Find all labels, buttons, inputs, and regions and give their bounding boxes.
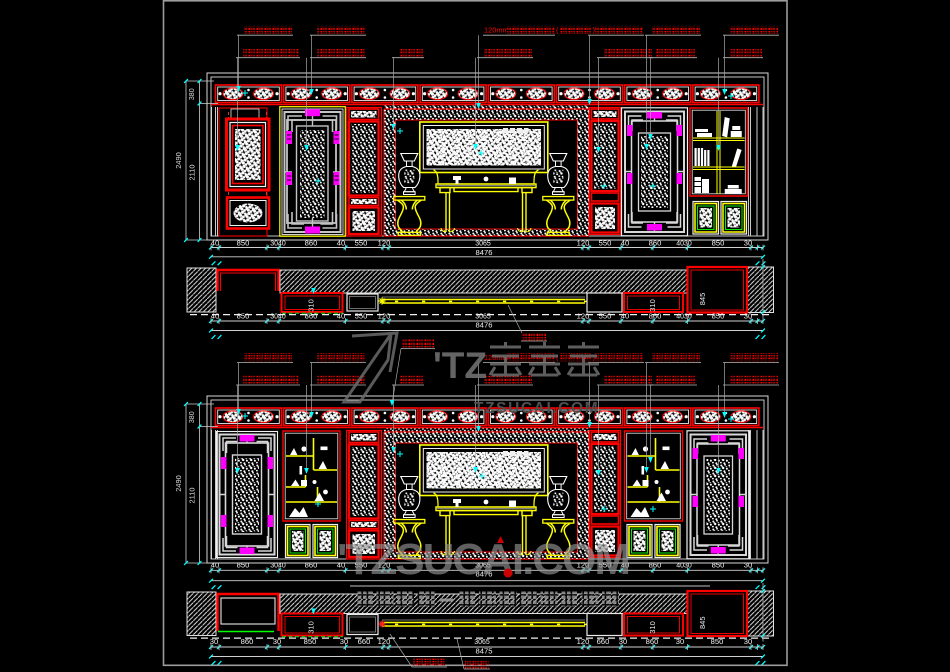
- svg-text:850: 850: [304, 637, 317, 646]
- svg-text:2490: 2490: [174, 152, 183, 168]
- svg-text:860: 860: [649, 312, 662, 321]
- svg-text:310: 310: [648, 299, 657, 312]
- svg-text:850: 850: [237, 239, 250, 248]
- svg-text:860: 860: [241, 637, 254, 646]
- svg-text:380: 380: [189, 411, 196, 423]
- svg-text:850: 850: [711, 637, 724, 646]
- svg-text:): ): [593, 26, 595, 35]
- svg-text:8475: 8475: [476, 646, 493, 655]
- svg-text:3040: 3040: [270, 314, 286, 321]
- svg-text:310: 310: [307, 299, 316, 312]
- svg-text:8476: 8476: [476, 320, 493, 329]
- svg-text:40: 40: [211, 561, 219, 570]
- svg-text:'TZ: 'TZ: [433, 345, 487, 386]
- svg-text:'TZSUCAI.COM: 'TZSUCAI.COM: [337, 535, 629, 584]
- svg-text:550: 550: [355, 239, 368, 248]
- svg-text:3065: 3065: [475, 241, 491, 248]
- svg-text:860: 860: [646, 637, 659, 646]
- svg-text:30: 30: [619, 637, 627, 646]
- svg-text:2490: 2490: [174, 475, 183, 491]
- svg-text:660: 660: [358, 637, 371, 646]
- svg-text:40: 40: [337, 239, 345, 248]
- svg-text:845: 845: [698, 293, 707, 306]
- svg-text:120mm: 120mm: [484, 26, 509, 35]
- svg-text:380: 380: [189, 88, 196, 100]
- svg-text:850: 850: [712, 312, 725, 321]
- svg-text:660: 660: [597, 637, 610, 646]
- svg-text:3040: 3040: [270, 563, 286, 570]
- svg-text:850: 850: [237, 312, 250, 321]
- svg-text:2110: 2110: [188, 165, 197, 181]
- svg-text:30: 30: [273, 637, 281, 646]
- svg-text:8476: 8476: [476, 248, 493, 257]
- svg-text:860: 860: [305, 561, 318, 570]
- svg-text:30: 30: [340, 637, 348, 646]
- svg-text:4030: 4030: [676, 563, 692, 570]
- svg-text:850: 850: [237, 561, 250, 570]
- svg-text:845: 845: [698, 616, 707, 629]
- svg-text:850: 850: [712, 561, 725, 570]
- svg-text:3065: 3065: [474, 639, 490, 646]
- svg-text:310: 310: [307, 621, 316, 634]
- svg-text:40: 40: [337, 312, 345, 321]
- svg-text:4030: 4030: [676, 241, 692, 248]
- svg-text:2110: 2110: [188, 488, 197, 504]
- svg-text:550: 550: [599, 239, 612, 248]
- svg-text:30: 30: [676, 637, 684, 646]
- svg-text:3040: 3040: [270, 241, 286, 248]
- svg-text:850: 850: [712, 239, 725, 248]
- svg-text:TZSUCAI.COM: TZSUCAI.COM: [474, 400, 599, 417]
- svg-text:550: 550: [599, 312, 612, 321]
- svg-text:860: 860: [649, 561, 662, 570]
- svg-text:550: 550: [355, 312, 368, 321]
- svg-text:860: 860: [305, 239, 318, 248]
- svg-text:120: 120: [378, 637, 391, 646]
- svg-text:860: 860: [305, 312, 318, 321]
- svg-text:310: 310: [648, 621, 657, 634]
